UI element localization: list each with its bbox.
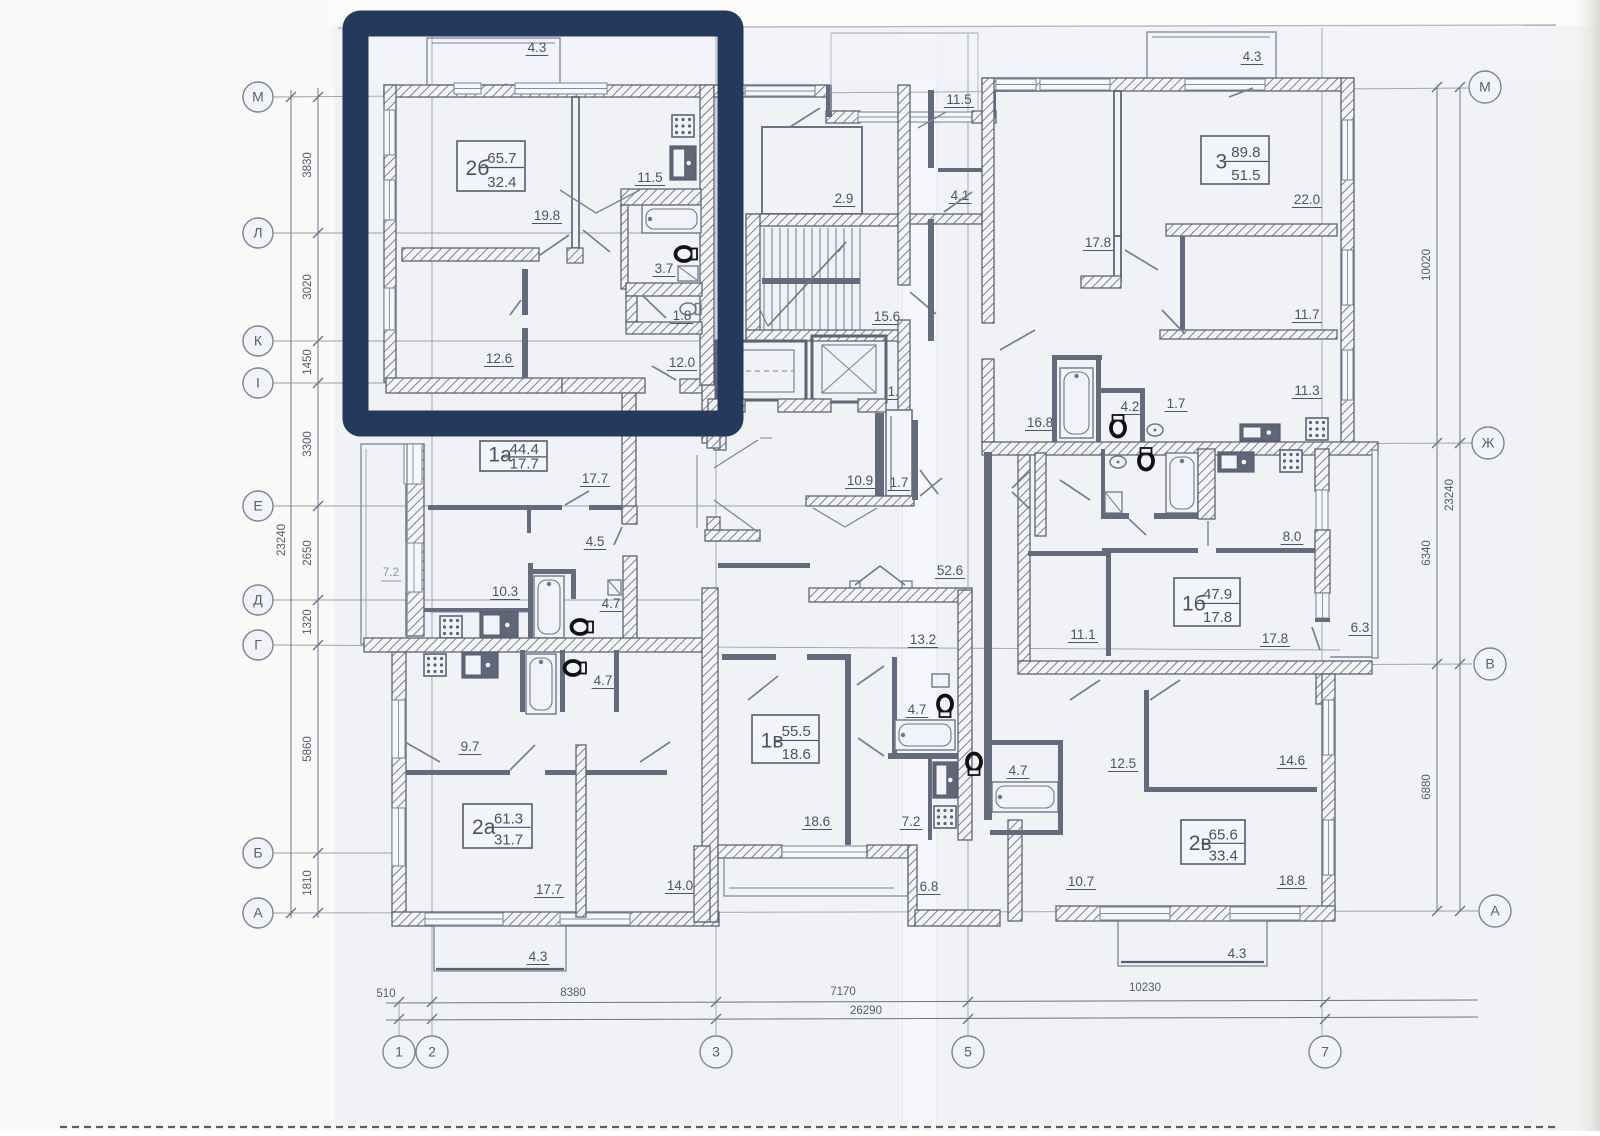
svg-text:17.8: 17.8: [1203, 609, 1232, 626]
svg-text:12.5: 12.5: [1110, 756, 1136, 771]
svg-text:31.7: 31.7: [494, 831, 523, 848]
svg-text:33.4: 33.4: [1209, 847, 1238, 864]
svg-text:17.8: 17.8: [1085, 235, 1111, 250]
svg-text:55.5: 55.5: [782, 723, 811, 740]
svg-text:4.7: 4.7: [1009, 763, 1028, 778]
svg-text:4.3: 4.3: [529, 949, 548, 964]
svg-text:5: 5: [964, 1044, 972, 1060]
svg-text:18.6: 18.6: [782, 746, 811, 763]
svg-text:А: А: [253, 905, 263, 921]
svg-text:14.0: 14.0: [667, 878, 693, 893]
svg-text:3.7: 3.7: [655, 261, 674, 276]
svg-text:510: 510: [376, 988, 395, 1000]
svg-text:16.8: 16.8: [1027, 415, 1053, 430]
svg-text:23240: 23240: [276, 524, 288, 556]
svg-text:19.8: 19.8: [534, 208, 560, 223]
svg-text:3: 3: [712, 1044, 720, 1060]
svg-text:7.2: 7.2: [383, 565, 400, 579]
svg-text:Д: Д: [253, 592, 263, 608]
svg-text:17.7: 17.7: [536, 882, 562, 897]
svg-text:11.5: 11.5: [946, 92, 971, 107]
svg-text:7.2: 7.2: [902, 814, 921, 829]
svg-text:3830: 3830: [302, 152, 314, 178]
svg-text:11.1: 11.1: [1070, 627, 1095, 642]
svg-text:4.7: 4.7: [602, 596, 621, 611]
svg-text:1: 1: [395, 1044, 403, 1060]
svg-text:5860: 5860: [302, 736, 314, 762]
svg-text:6340: 6340: [1421, 540, 1433, 566]
svg-text:4.3: 4.3: [528, 40, 547, 55]
svg-text:6.8: 6.8: [920, 879, 939, 894]
svg-text:10.9: 10.9: [847, 473, 873, 488]
svg-text:7170: 7170: [830, 986, 856, 998]
svg-text:47.9: 47.9: [1203, 586, 1232, 603]
svg-text:23240: 23240: [1444, 479, 1456, 511]
svg-text:17.7: 17.7: [510, 456, 539, 473]
svg-text:8.0: 8.0: [1283, 529, 1302, 544]
svg-text:51.5: 51.5: [1231, 167, 1260, 184]
svg-text:В: В: [1485, 656, 1494, 672]
svg-text:26290: 26290: [850, 1005, 882, 1017]
svg-text:11.7: 11.7: [1294, 307, 1319, 322]
svg-text:Л: Л: [253, 225, 262, 241]
svg-text:1810: 1810: [302, 870, 314, 896]
svg-text:10.7: 10.7: [1068, 874, 1094, 889]
svg-text:1450: 1450: [302, 349, 314, 375]
svg-text:10.3: 10.3: [492, 584, 518, 599]
svg-text:4.2: 4.2: [1121, 399, 1140, 414]
svg-text:61.3: 61.3: [494, 810, 523, 827]
svg-text:12.6: 12.6: [486, 351, 512, 366]
svg-text:6.3: 6.3: [1351, 620, 1370, 635]
svg-text:65.7: 65.7: [487, 150, 516, 167]
svg-text:2: 2: [428, 1044, 436, 1060]
svg-text:2.9: 2.9: [835, 191, 854, 206]
svg-text:10230: 10230: [1129, 982, 1161, 994]
svg-text:1.7: 1.7: [1167, 396, 1186, 411]
svg-text:11.3: 11.3: [1294, 383, 1319, 398]
svg-text:18.8: 18.8: [1279, 873, 1305, 888]
svg-text:М: М: [252, 89, 264, 105]
svg-text:Б: Б: [253, 845, 262, 861]
svg-text:Е: Е: [253, 498, 262, 514]
svg-text:2650: 2650: [302, 540, 314, 566]
svg-text:4.5: 4.5: [586, 534, 605, 549]
svg-text:1320: 1320: [302, 609, 314, 635]
svg-text:Г: Г: [254, 637, 262, 653]
svg-text:2б: 2б: [466, 157, 490, 180]
svg-text:1.7: 1.7: [890, 475, 909, 490]
svg-text:1а: 1а: [488, 443, 512, 466]
svg-text:14.6: 14.6: [1279, 753, 1305, 768]
svg-text:4.3: 4.3: [1228, 946, 1247, 961]
svg-text:6880: 6880: [1421, 774, 1433, 800]
svg-text:17.7: 17.7: [582, 471, 608, 486]
svg-text:10020: 10020: [1421, 249, 1433, 281]
svg-text:18.6: 18.6: [804, 814, 830, 829]
svg-text:9.7: 9.7: [461, 739, 480, 754]
svg-text:17.8: 17.8: [1262, 631, 1288, 646]
svg-text:1.8: 1.8: [673, 308, 692, 323]
svg-text:4.7: 4.7: [594, 673, 613, 688]
svg-text:12.0: 12.0: [669, 355, 695, 370]
svg-text:7: 7: [1321, 1044, 1329, 1060]
svg-text:32.4: 32.4: [487, 174, 516, 191]
svg-text:Ж: Ж: [1482, 435, 1495, 451]
svg-text:13.2: 13.2: [910, 632, 936, 647]
svg-text:3020: 3020: [302, 274, 314, 300]
svg-text:4.3: 4.3: [1243, 49, 1262, 64]
svg-text:М: М: [1479, 79, 1491, 95]
svg-text:89.8: 89.8: [1231, 144, 1260, 161]
svg-text:1в: 1в: [761, 730, 784, 753]
svg-text:4.7: 4.7: [908, 702, 927, 717]
svg-text:15.6: 15.6: [874, 309, 900, 324]
svg-text:52.6: 52.6: [937, 563, 963, 578]
svg-text:22.0: 22.0: [1294, 192, 1320, 207]
svg-text:8380: 8380: [560, 987, 586, 999]
svg-text:3300: 3300: [302, 431, 314, 457]
svg-text:65.6: 65.6: [1209, 826, 1238, 843]
svg-text:А: А: [1490, 903, 1500, 919]
svg-text:3: 3: [1216, 151, 1228, 174]
svg-text:11.5: 11.5: [637, 170, 662, 185]
svg-text:К: К: [254, 333, 263, 349]
svg-text:I: I: [256, 375, 260, 391]
